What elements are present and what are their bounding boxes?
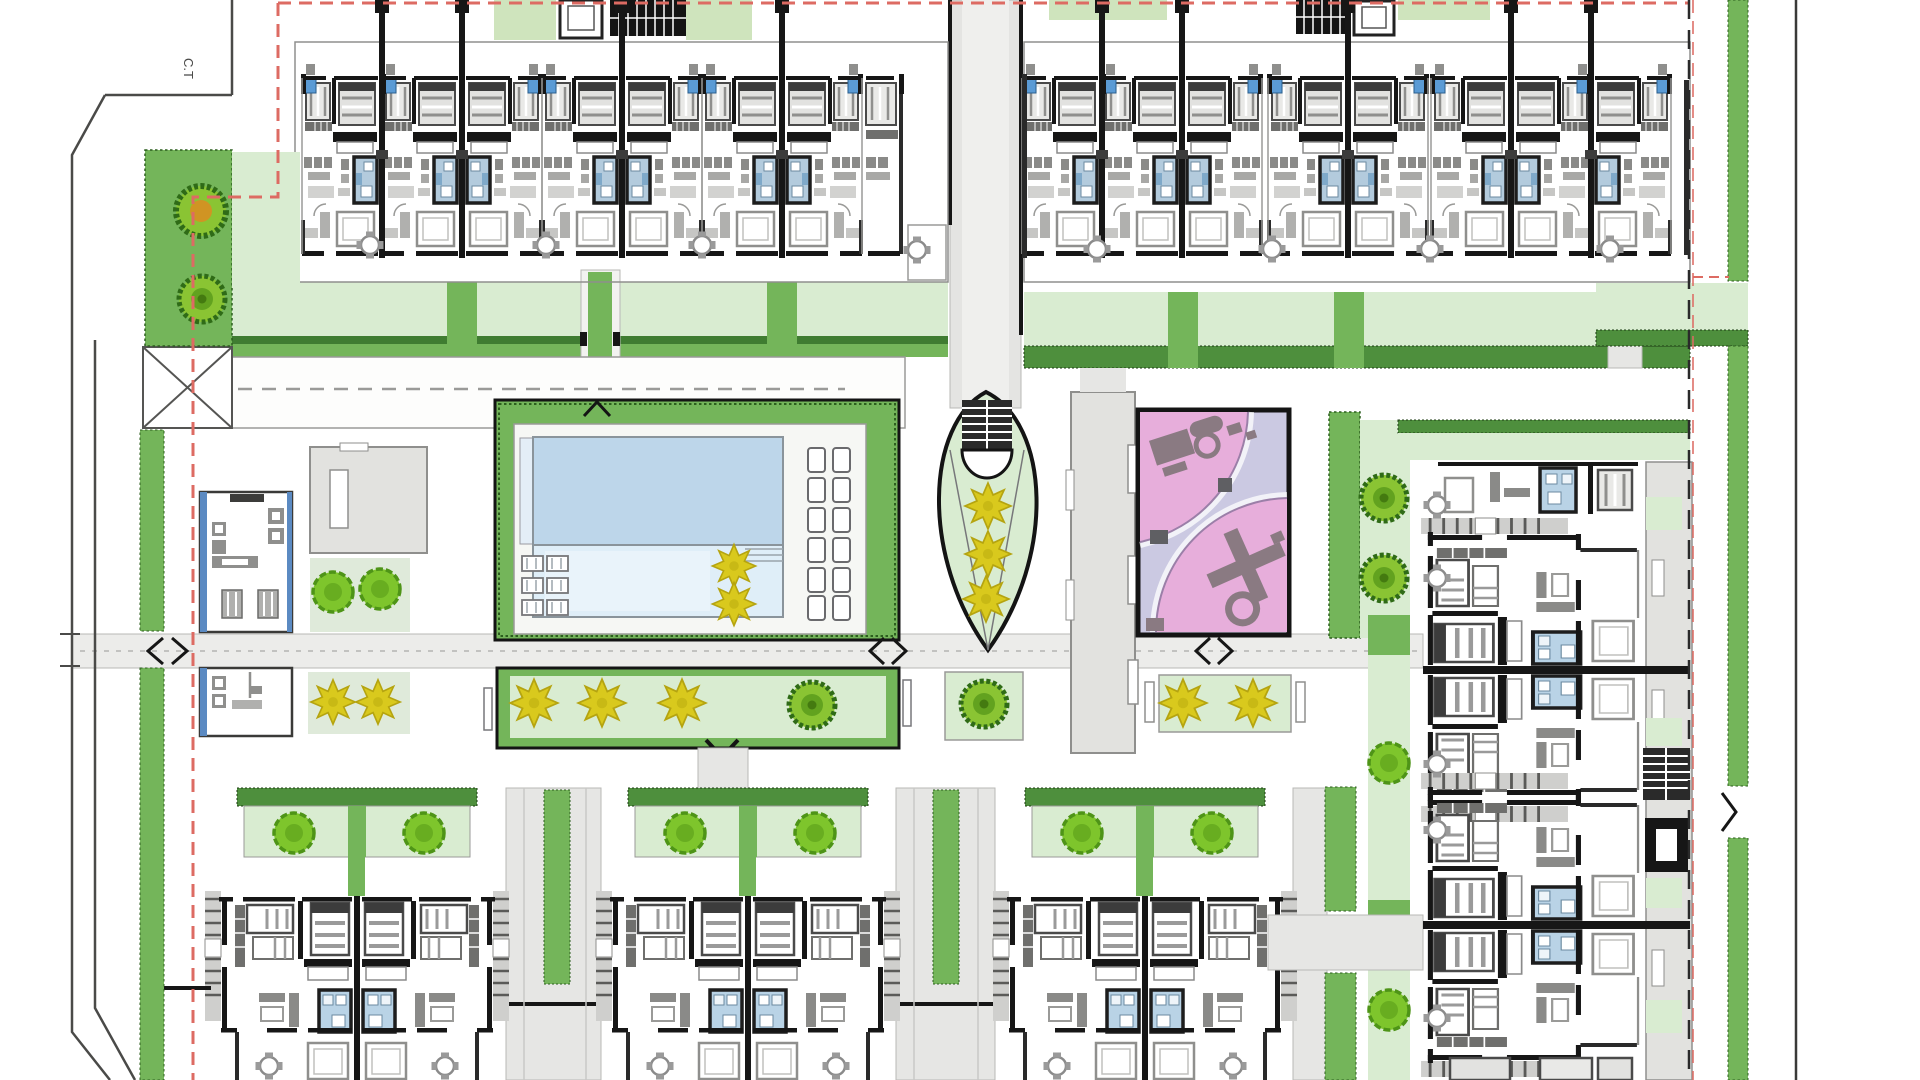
svg-text:C.T: C.T [181, 58, 196, 79]
